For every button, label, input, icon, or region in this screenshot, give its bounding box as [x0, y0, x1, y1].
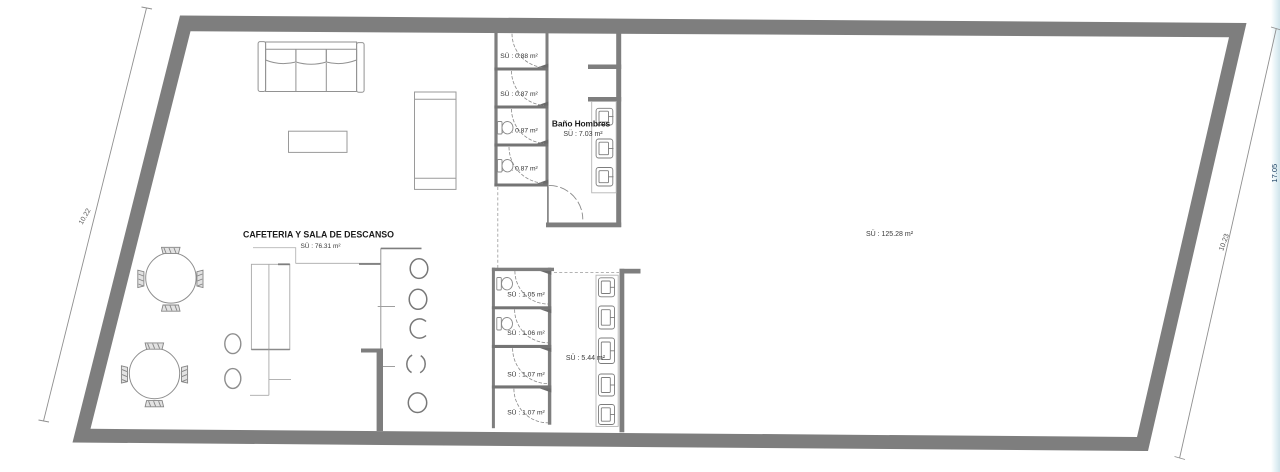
svg-text:SÜ : 76.31 m²: SÜ : 76.31 m²	[300, 242, 341, 250]
svg-text:SÜ : 1.07 m²: SÜ : 1.07 m²	[507, 409, 545, 417]
svg-text:SÜ : 125.28 m²: SÜ : 125.28 m²	[866, 230, 914, 238]
svg-text:SÜ : 5.44 m²: SÜ : 5.44 m²	[566, 354, 606, 362]
svg-text:Baño Hombres: Baño Hombres	[552, 119, 611, 129]
svg-text:CAFETERIA Y SALA DE DESCANSO: CAFETERIA Y SALA DE DESCANSO	[243, 230, 394, 240]
svg-text:SÜ : 1.07 m²: SÜ : 1.07 m²	[507, 371, 545, 379]
svg-text:SÜ : 0.88 m²: SÜ : 0.88 m²	[500, 52, 538, 60]
svg-text:SÜ : 1.06 m²: SÜ : 1.06 m²	[507, 329, 545, 337]
svg-text:SÜ : 7.03 m²: SÜ : 7.03 m²	[563, 130, 603, 138]
svg-text:SÜ : 1.05 m²: SÜ : 1.05 m²	[507, 291, 545, 299]
svg-text:17.05: 17.05	[1270, 164, 1279, 183]
svg-text:SÜ : 0.87 m²: SÜ : 0.87 m²	[500, 90, 538, 98]
